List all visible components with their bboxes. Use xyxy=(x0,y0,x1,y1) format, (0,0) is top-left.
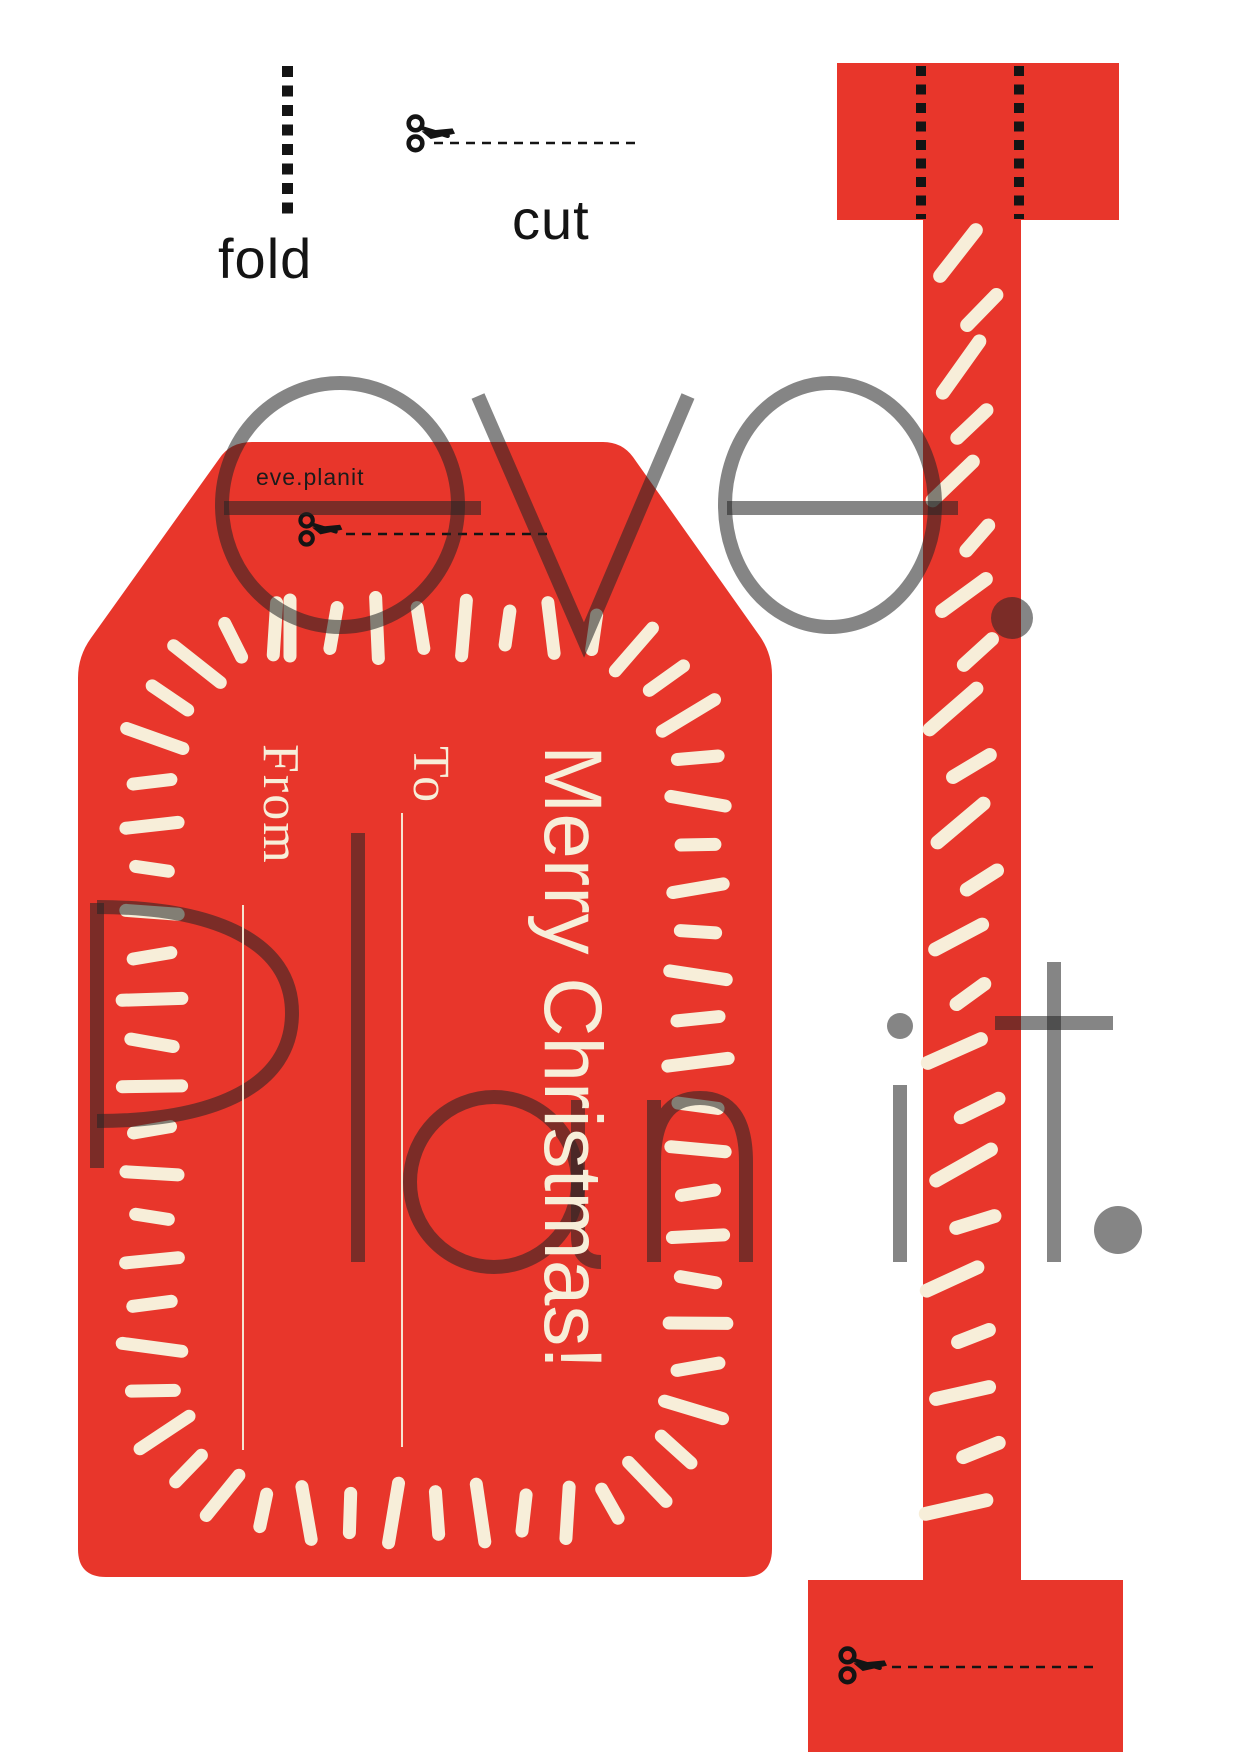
scissors-icon xyxy=(409,117,455,151)
greeting-text: Merry Christmas! xyxy=(531,745,613,1369)
brand-credit: eve.planit xyxy=(256,466,364,489)
watermark-period-2 xyxy=(1094,1206,1142,1254)
ribbon-strip xyxy=(808,63,1123,1752)
to-label: To xyxy=(404,746,456,804)
gift-tag xyxy=(78,442,772,1577)
to-write-line xyxy=(401,813,403,1447)
printable-artwork xyxy=(0,0,1238,1757)
gift-tag-printable-page: fold cut eve.planit From To Merry Christ… xyxy=(0,0,1238,1757)
from-write-line xyxy=(242,905,244,1450)
ribbon-top-tab xyxy=(837,63,1119,220)
from-label: From xyxy=(254,744,306,865)
fold-label: fold xyxy=(218,231,312,287)
watermark-period-1 xyxy=(991,597,1033,639)
cut-label: cut xyxy=(512,192,590,248)
